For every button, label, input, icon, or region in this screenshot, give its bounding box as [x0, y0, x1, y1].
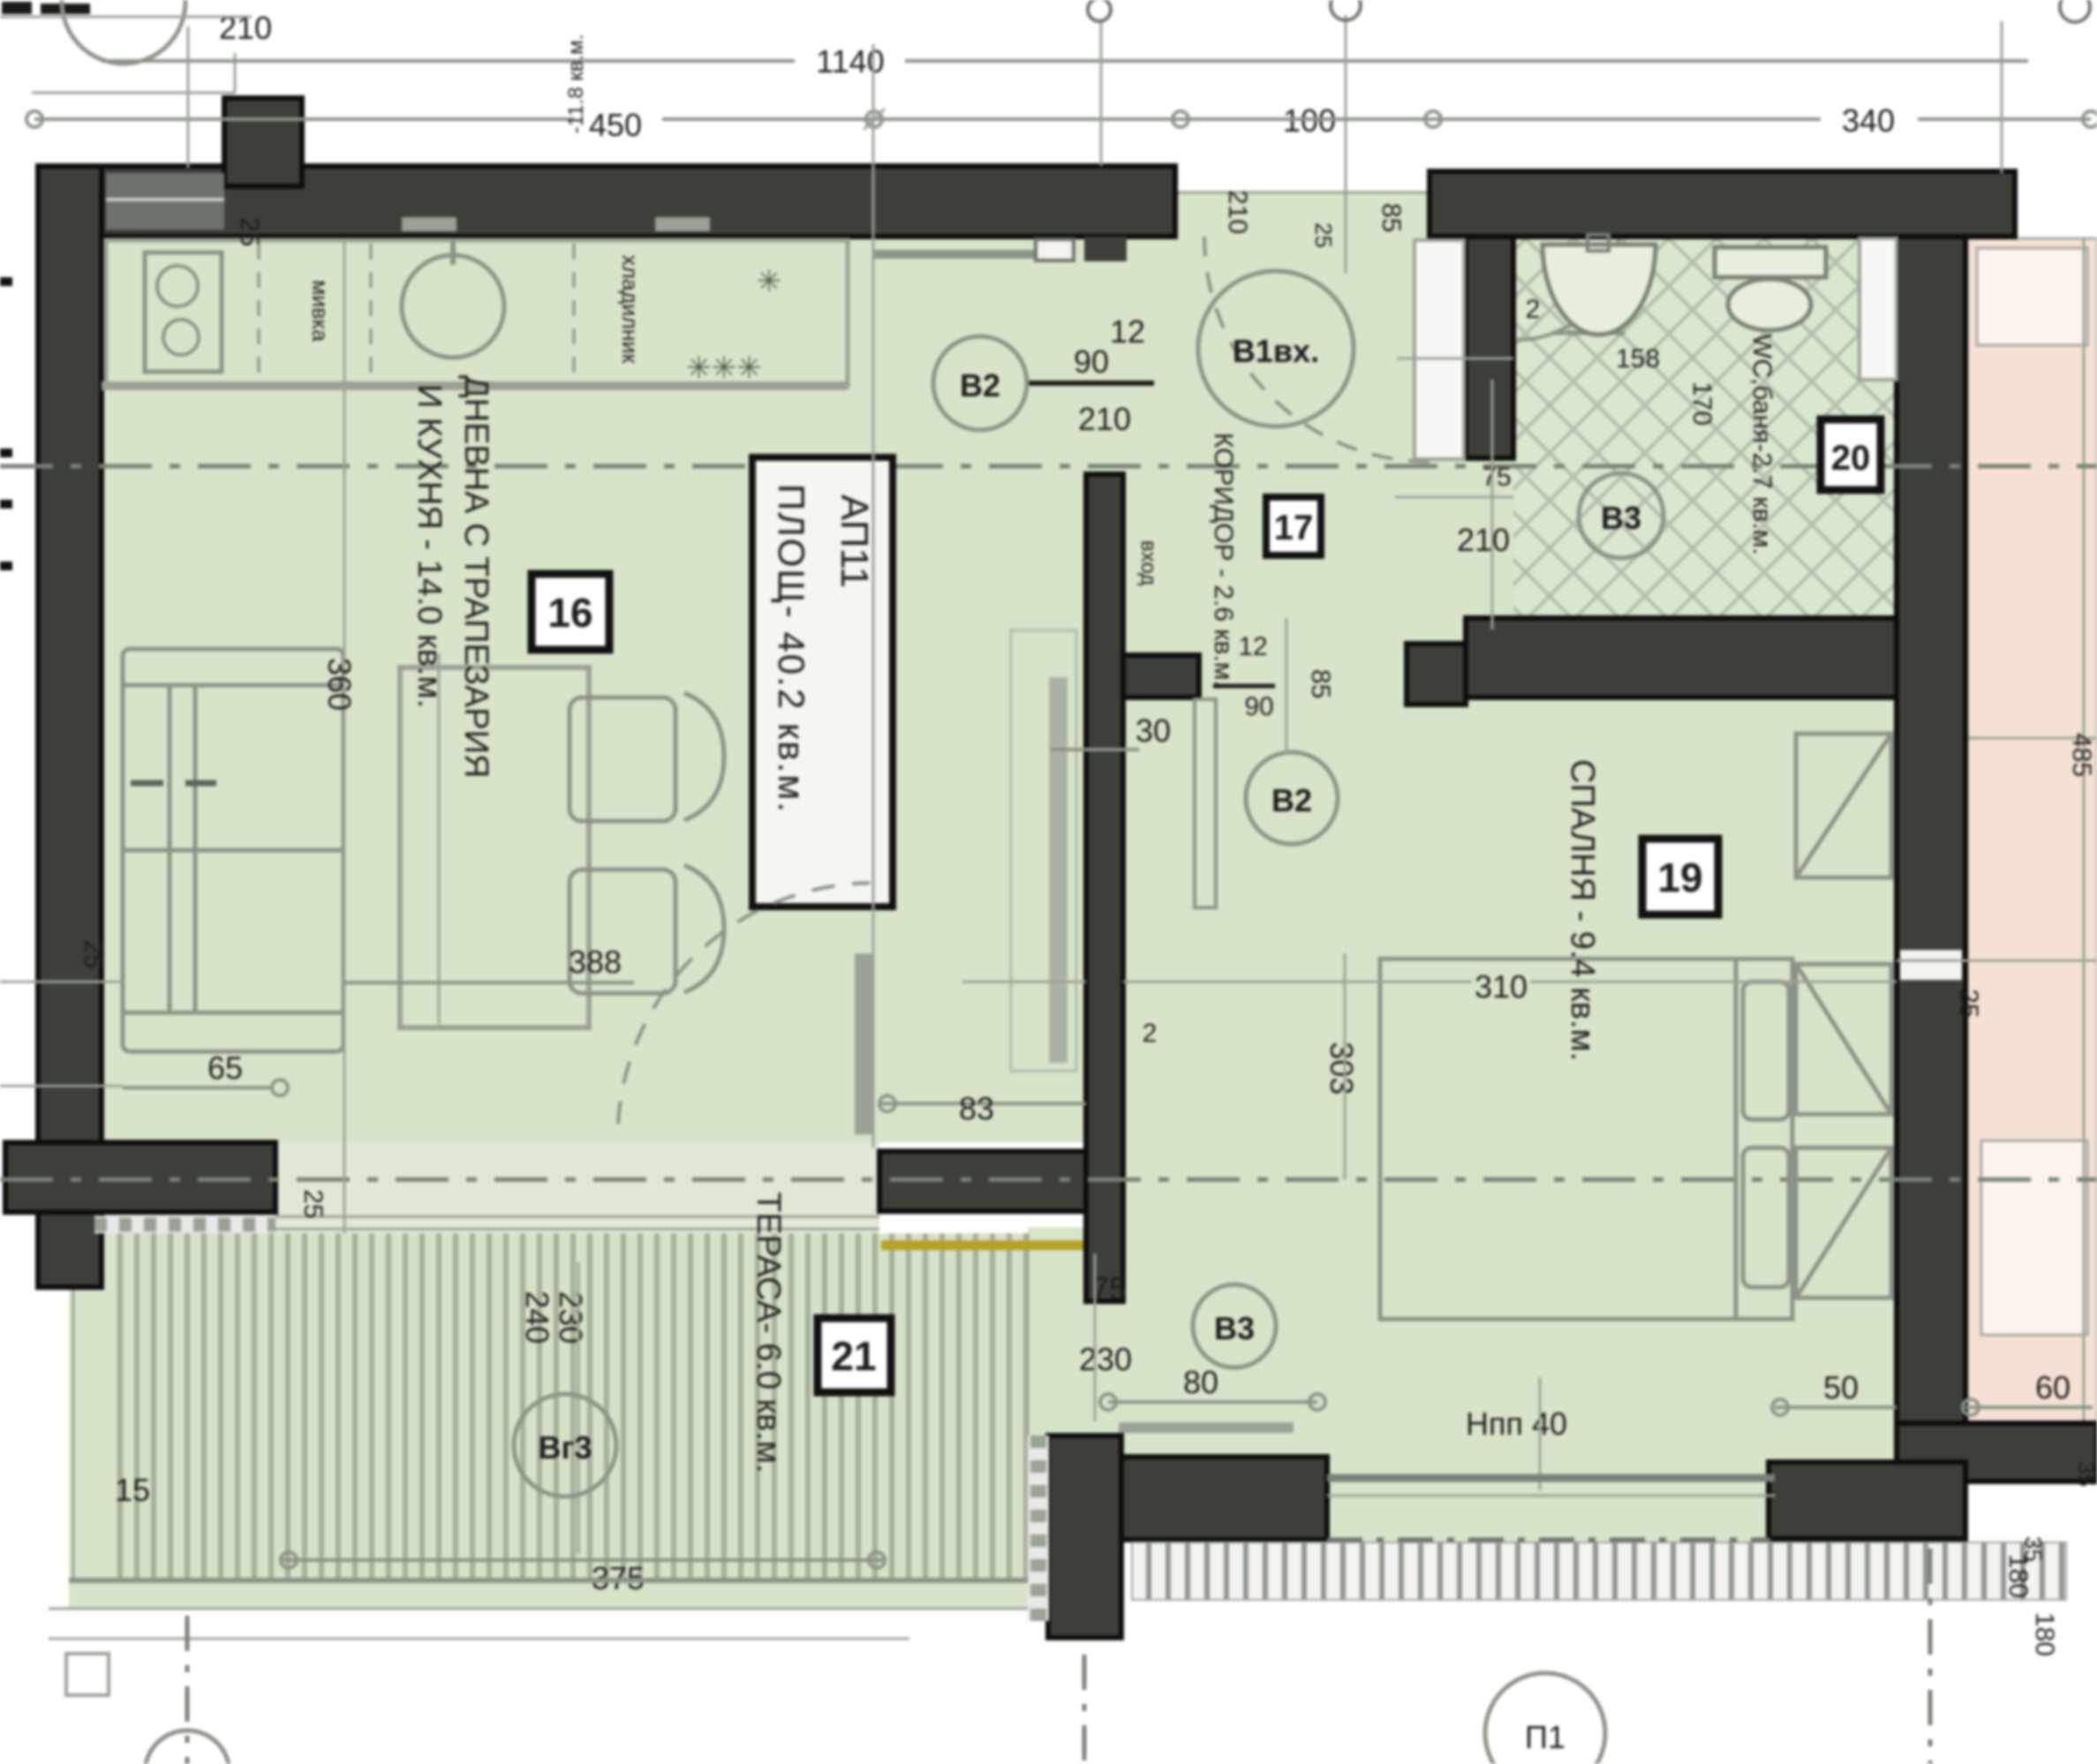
svg-text:✳✳✳: ✳✳✳: [686, 351, 761, 385]
svg-text:СПАЛНЯ - 9.4 кв.м.: СПАЛНЯ - 9.4 кв.м.: [1564, 759, 1601, 1061]
svg-text:16: 16: [547, 590, 592, 636]
svg-text:50: 50: [1823, 1369, 1859, 1406]
svg-text:65: 65: [207, 1050, 243, 1086]
svg-text:2: 2: [1526, 295, 1541, 324]
svg-text:25: 25: [79, 939, 108, 969]
svg-text:мивка: мивка: [307, 280, 332, 342]
svg-text:ПЛОЩ- 40.2 кв.м.: ПЛОЩ- 40.2 кв.м.: [771, 484, 812, 814]
svg-text:30: 30: [1135, 712, 1171, 749]
svg-text:310: 310: [1475, 969, 1527, 1005]
svg-text:340: 340: [1842, 102, 1895, 139]
svg-text:210: 210: [219, 10, 272, 46]
svg-text:20: 20: [1831, 439, 1871, 478]
svg-text:170: 170: [1687, 381, 1716, 426]
svg-text:75: 75: [1091, 1270, 1127, 1307]
svg-text:19: 19: [1657, 855, 1702, 901]
svg-text:80: 80: [1183, 1364, 1218, 1400]
svg-text:ДНЕВНА С ТРАПЕЗАРИЯ: ДНЕВНА С ТРАПЕЗАРИЯ: [457, 375, 494, 778]
svg-text:240: 240: [519, 1291, 555, 1344]
svg-text:12: 12: [1110, 313, 1145, 350]
svg-text:12: 12: [1238, 632, 1267, 661]
svg-text:230: 230: [1079, 1341, 1132, 1377]
svg-text:388: 388: [569, 944, 622, 980]
svg-text:85: 85: [1377, 203, 1406, 232]
svg-text:В2: В2: [1271, 782, 1312, 818]
svg-text:75: 75: [1482, 463, 1511, 492]
svg-text:25: 25: [1954, 989, 1983, 1018]
svg-text:ТЕРАСА- 6.0 кв.м.: ТЕРАСА- 6.0 кв.м.: [750, 1192, 787, 1473]
svg-text:60: 60: [2035, 1369, 2071, 1406]
svg-text:25: 25: [298, 1189, 328, 1218]
svg-text:В3: В3: [1214, 1310, 1255, 1346]
svg-text:158: 158: [1616, 344, 1660, 373]
svg-text:✳: ✳: [757, 265, 782, 298]
svg-text:П1: П1: [1525, 1719, 1565, 1755]
svg-text:210: 210: [1078, 401, 1131, 437]
svg-text:485: 485: [2067, 733, 2096, 777]
svg-text:90: 90: [1244, 692, 1273, 721]
svg-text:85: 85: [1306, 669, 1335, 698]
svg-text:35: 35: [2073, 1461, 2097, 1487]
svg-text:83: 83: [959, 1090, 994, 1127]
svg-text:303: 303: [1324, 1042, 1360, 1095]
svg-text:450: 450: [589, 107, 642, 143]
svg-text:230: 230: [553, 1291, 589, 1344]
svg-text:35: 35: [2020, 1536, 2047, 1562]
svg-text:210: 210: [1223, 190, 1252, 234]
svg-text:210: 210: [1457, 522, 1510, 558]
svg-text:WC,баня-2.7 кв.м.: WC,баня-2.7 кв.м.: [1747, 334, 1776, 555]
svg-text:21: 21: [831, 1333, 876, 1379]
svg-text:В3: В3: [1601, 500, 1641, 536]
svg-text:17: 17: [1274, 509, 1314, 547]
svg-text:2: 2: [1143, 1019, 1158, 1048]
svg-text:25: 25: [235, 217, 264, 246]
svg-text:25: 25: [1310, 222, 1337, 248]
svg-text:Вг3: Вг3: [538, 1429, 592, 1466]
svg-text:АП11: АП11: [833, 494, 876, 588]
svg-text:Нпп 40: Нпп 40: [1466, 1406, 1567, 1442]
svg-text:КОРИДОР - 2.6 кв.м.: КОРИДОР - 2.6 кв.м.: [1209, 433, 1238, 688]
svg-text:хладилник: хладилник: [617, 255, 642, 365]
svg-text:-11.8 кв.м.: -11.8 кв.м.: [564, 34, 588, 134]
svg-text:вход: вход: [1136, 540, 1160, 585]
svg-text:И КУХНЯ - 14.0 кв.м.: И КУХНЯ - 14.0 кв.м.: [411, 384, 448, 708]
svg-text:90: 90: [1074, 343, 1109, 380]
svg-text:15: 15: [115, 1472, 150, 1508]
svg-text:180: 180: [2030, 1612, 2059, 1656]
svg-text:В2: В2: [960, 367, 1000, 403]
svg-text:360: 360: [321, 658, 358, 711]
svg-text:В1вх.: В1вх.: [1233, 333, 1319, 369]
